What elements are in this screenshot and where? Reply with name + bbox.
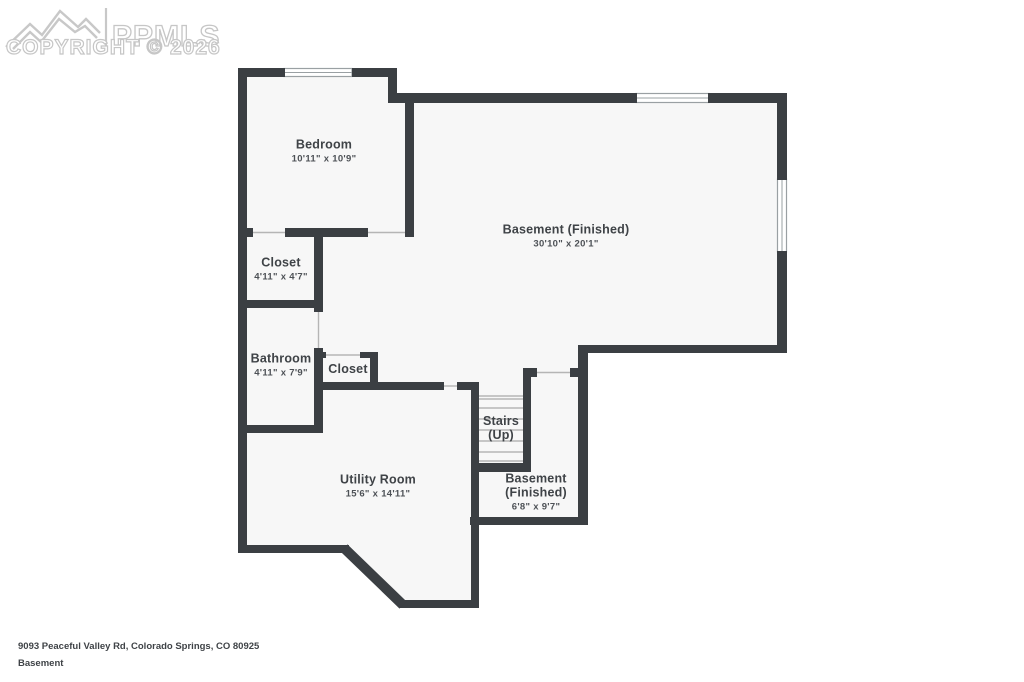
room-label-closet-2: Closet xyxy=(328,362,367,376)
room-name: Bathroom xyxy=(251,352,312,366)
room-name: Basement (Finished) xyxy=(503,223,630,237)
window-basement-top xyxy=(630,93,715,103)
room-label-bedroom: Bedroom 10'11" x 10'9" xyxy=(292,138,357,167)
floor-name: Basement xyxy=(18,658,63,669)
room-label-bathroom: Bathroom 4'11" x 7'9" xyxy=(251,352,312,381)
room-name-2: (Up) xyxy=(483,428,519,442)
room-name-2: (Finished) xyxy=(505,486,567,500)
room-label-basement-small: Basement (Finished) 6'8" x 9'7" xyxy=(505,472,567,515)
room-dims: 10'11" x 10'9" xyxy=(292,153,357,167)
window-basement-right xyxy=(777,173,787,258)
property-address: 9093 Peaceful Valley Rd, Colorado Spring… xyxy=(18,641,259,652)
room-name: Closet xyxy=(328,362,367,376)
disclaimer-text: Floor plans/tour cannot be used for buil… xyxy=(0,0,512,7)
room-dims: 15'6" x 14'11" xyxy=(340,488,416,502)
room-name: Stairs xyxy=(483,414,519,428)
floorplan-page: PPMLS COPYRIGHT © 2026 xyxy=(0,0,1024,682)
room-name: Basement xyxy=(505,472,567,486)
copyright-text: COPYRIGHT © 2026 xyxy=(6,36,221,59)
room-dims: 6'8" x 9'7" xyxy=(505,501,567,515)
floorplan-drawing: PPMLS COPYRIGHT © 2026 xyxy=(0,0,1024,682)
window-bedroom-top xyxy=(279,68,358,77)
room-dims: 30'10" x 20'1" xyxy=(503,238,630,252)
room-label-closet-1: Closet 4'11" x 4'7" xyxy=(254,256,308,285)
room-label-stairs: Stairs (Up) xyxy=(483,414,519,442)
room-dims: 4'11" x 4'7" xyxy=(254,271,308,285)
room-dims: 4'11" x 7'9" xyxy=(251,367,312,381)
ppmls-watermark: PPMLS COPYRIGHT © 2026 xyxy=(6,8,221,59)
room-name: Utility Room xyxy=(340,473,416,487)
room-label-basement-main: Basement (Finished) 30'10" x 20'1" xyxy=(503,223,630,252)
room-name: Bedroom xyxy=(292,138,357,152)
room-name: Closet xyxy=(254,256,308,270)
room-label-utility: Utility Room 15'6" x 14'11" xyxy=(340,473,416,502)
